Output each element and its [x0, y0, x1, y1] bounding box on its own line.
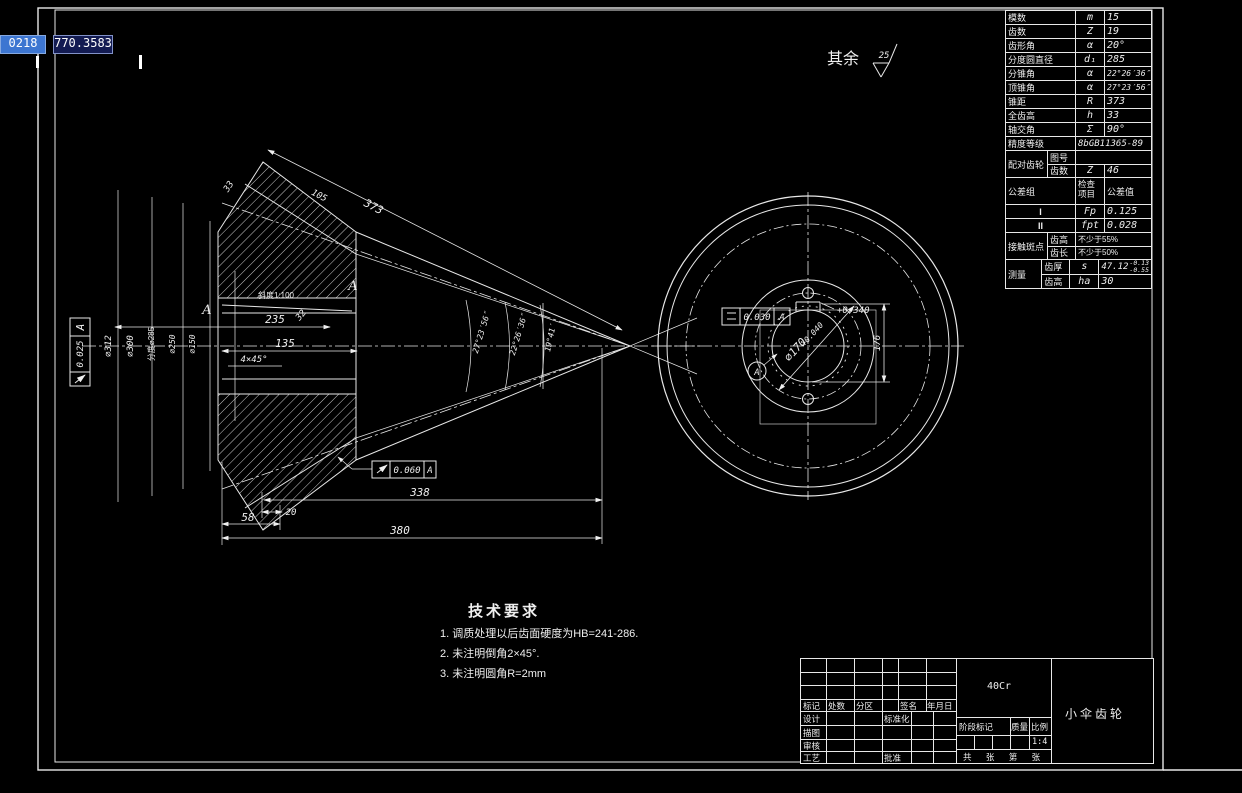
- tb-count: 处数: [828, 700, 845, 712]
- front-view-dimensions: ⌀170 +0.040 +0.340 176 A: [753, 306, 883, 378]
- param-label: 测量: [1006, 260, 1042, 288]
- tb-scale-value: 1:4: [1032, 737, 1047, 747]
- param-symbol: Σ: [1076, 123, 1105, 136]
- surface-finish-note: 其余 25: [827, 44, 897, 77]
- dim-bore-length: 135: [275, 337, 295, 350]
- param-symbol: α: [1076, 67, 1105, 80]
- param-value: 30: [1099, 275, 1151, 289]
- param-label: 精度等级: [1006, 137, 1076, 150]
- param-symbol: s: [1070, 260, 1099, 274]
- technical-requirements: 技术要求 1. 调质处理以后齿面硬度为HB=241-286. 2. 未注明倒角2…: [440, 600, 670, 681]
- param-row: 模数m15: [1006, 11, 1151, 25]
- param-row: 顶锥角α27°23′56″: [1006, 81, 1151, 95]
- param-label: I: [1006, 205, 1076, 218]
- param-label: 检查项目: [1076, 178, 1105, 204]
- dim-pitch-angle: 22°26′36″: [508, 312, 529, 356]
- param-value: 0.125: [1105, 205, 1151, 218]
- param-row-contact: 接触斑点 齿高不少于55% 齿长不少于50%: [1006, 233, 1151, 260]
- param-label: 分度圆直径: [1006, 53, 1076, 66]
- param-symbol: fpt: [1076, 219, 1105, 232]
- param-value: 22°26′36″: [1105, 67, 1151, 80]
- front-view-linework: [652, 192, 964, 500]
- tech-req-line: 3. 未注明圆角R=2mm: [440, 665, 670, 681]
- param-row: 轴交角Σ90°: [1006, 123, 1151, 137]
- surface-finish-prefix: 其余: [827, 49, 859, 68]
- tb-standardization: 标准化: [884, 713, 910, 725]
- gdt-bottom-value: 0.060: [393, 466, 420, 476]
- param-value: 不少于50%: [1076, 247, 1151, 260]
- param-label: 齿形角: [1006, 39, 1076, 52]
- dim-d250: ⌀250: [168, 334, 177, 353]
- tb-material: 40Cr: [987, 681, 1011, 692]
- dim-hub-length: 235: [265, 313, 285, 326]
- param-label: 公差值: [1105, 178, 1151, 204]
- param-row-tolerance-header: 公差组 检查项目 公差值: [1006, 178, 1151, 205]
- param-value: 27°23′56″: [1105, 81, 1151, 94]
- param-value: 33: [1105, 109, 1151, 122]
- gdt-bottom-datum: A: [426, 466, 432, 476]
- tb-review: 审核: [803, 740, 820, 752]
- param-row-mating-gear: 配对齿轮 图号 齿数Z46: [1006, 151, 1151, 178]
- param-value: 不少于55%: [1076, 233, 1151, 246]
- dim-d312: ⌀312: [104, 335, 114, 357]
- tb-approve: 批准: [884, 752, 901, 764]
- param-value: 19: [1105, 25, 1151, 38]
- param-symbol: ha: [1070, 275, 1099, 289]
- param-label: 齿高: [1042, 275, 1070, 289]
- dim-chamfer: 4×45°: [240, 355, 267, 365]
- param-row: 齿数Z19: [1006, 25, 1151, 39]
- tb-sheets: 共 张 第 张: [963, 751, 1046, 763]
- dim-tip-width: 20: [286, 508, 297, 518]
- param-label: 齿长: [1048, 247, 1076, 260]
- runout-icon: [75, 375, 85, 383]
- param-label: 公差组: [1006, 178, 1076, 204]
- tb-process: 工艺: [803, 752, 820, 764]
- dim-d300: ⌀300: [126, 335, 136, 357]
- gdt-left-datum: A: [74, 324, 87, 332]
- param-row: 全齿高h33: [1006, 109, 1151, 123]
- param-symbol: Z: [1076, 25, 1105, 38]
- tb-mass: 质量: [1011, 721, 1028, 733]
- cad-viewport: A 0.025 0.060 A ⌀312 ⌀300 分度⌀285 ⌀250 ⌀1…: [0, 0, 1242, 793]
- param-label: 锥距: [1006, 95, 1076, 108]
- param-value: 20°: [1105, 39, 1151, 52]
- param-label: 齿数: [1048, 165, 1076, 178]
- param-symbol: R: [1076, 95, 1105, 108]
- param-symbol: α: [1076, 39, 1105, 52]
- gdt-front-datum: A: [778, 313, 784, 323]
- gdt-left-value: 0.025: [76, 340, 86, 367]
- tech-req-title: 技术要求: [468, 600, 670, 621]
- tb-scale-label: 比例: [1031, 721, 1048, 733]
- param-label: 模数: [1006, 11, 1076, 24]
- param-label: 轴交角: [1006, 123, 1076, 136]
- coord-input-y[interactable]: 770.3583: [53, 35, 113, 54]
- param-symbol: m: [1076, 11, 1105, 24]
- param-row: 齿形角α20°: [1006, 39, 1151, 53]
- gear-parameter-table: 模数m15 齿数Z19 齿形角α20° 分度圆直径d₁285 分锥角α22°26…: [1005, 10, 1152, 289]
- tb-tracing: 描图: [803, 727, 820, 739]
- tech-req-line: 2. 未注明倒角2×45°.: [440, 645, 670, 661]
- param-label: 全齿高: [1006, 109, 1076, 122]
- param-symbol: Z: [1076, 165, 1105, 178]
- dim-keyway: 32: [294, 308, 309, 324]
- tech-req-line: 1. 调质处理以后齿面硬度为HB=241-286.: [440, 625, 670, 641]
- param-symbol: h: [1076, 109, 1105, 122]
- title-block: 标记 处数 分区 签名 年月日 设计 标准化 描图 审核 工艺 批准 40Cr …: [800, 658, 1154, 764]
- dim-root-angle: 19°41′: [543, 322, 558, 352]
- param-value: [1076, 151, 1151, 164]
- dim-face-angle: 27°23′56″: [471, 310, 492, 354]
- param-value: 0.028: [1105, 219, 1151, 232]
- dim-total-length: 380: [389, 524, 410, 537]
- param-value: 46: [1105, 165, 1151, 178]
- gdt-front-value: 0.030: [743, 313, 770, 323]
- param-value: 8bGB11365-89: [1076, 137, 1151, 150]
- tb-date: 年月日: [927, 700, 953, 712]
- param-label: 齿高: [1048, 233, 1076, 246]
- param-row: 分锥角α22°26′36″: [1006, 67, 1151, 81]
- dim-keyway-tolerance: +0.340: [837, 306, 870, 316]
- surface-roughness-value: 25: [879, 51, 890, 61]
- dim-d150: ⌀150: [188, 334, 197, 353]
- param-value: 47.12-0.13-0.55: [1099, 260, 1151, 274]
- crosshair-cursor[interactable]: [36, 55, 142, 69]
- dim-back-width: 58: [241, 511, 255, 524]
- param-label: 图号: [1048, 151, 1076, 164]
- param-label: 接触斑点: [1006, 233, 1048, 259]
- dim-d285-pitch: 分度⌀285: [146, 326, 156, 361]
- tb-zone: 分区: [856, 700, 873, 712]
- param-symbol: α: [1076, 81, 1105, 94]
- dim-tooth-depth: 33: [222, 180, 237, 195]
- param-value: 285: [1105, 53, 1151, 66]
- label-taper: 斜度1:100: [258, 290, 295, 300]
- tb-part-name: 小伞齿轮: [1065, 705, 1125, 722]
- param-value: 15: [1105, 11, 1151, 24]
- tb-signature: 签名: [900, 700, 917, 712]
- param-label: 齿厚: [1042, 260, 1070, 274]
- param-value: 373: [1105, 95, 1151, 108]
- param-row-accuracy: 精度等级8bGB11365-89: [1006, 137, 1151, 151]
- param-label: 配对齿轮: [1006, 151, 1048, 177]
- datum-a-label: A: [753, 368, 759, 378]
- param-label: 分锥角: [1006, 67, 1076, 80]
- tb-stage-mark: 阶段标记: [959, 721, 993, 733]
- coord-input-x[interactable]: 0218: [0, 35, 46, 54]
- section-label-a-left: A: [201, 303, 211, 318]
- param-label: 齿数: [1006, 25, 1076, 38]
- param-row-tolerance: IFp0.125: [1006, 205, 1151, 219]
- param-value: 90°: [1105, 123, 1151, 136]
- param-symbol: Fp: [1076, 205, 1105, 218]
- param-row-measure: 测量 齿厚s47.12-0.13-0.55 齿高ha30: [1006, 260, 1151, 288]
- section-label-a-right: A: [347, 279, 357, 294]
- dim-tip-to-apex: 338: [409, 486, 430, 499]
- param-row: 分度圆直径d₁285: [1006, 53, 1151, 67]
- param-symbol: d₁: [1076, 53, 1105, 66]
- runout-icon: [377, 465, 387, 473]
- dim-bore-tolerance: +0.040: [799, 320, 825, 348]
- param-row-tolerance: IIfpt0.028: [1006, 219, 1151, 233]
- param-label: 顶锥角: [1006, 81, 1076, 94]
- param-row: 锥距R373: [1006, 95, 1151, 109]
- param-label: II: [1006, 219, 1076, 232]
- symmetry-icon: [727, 313, 736, 319]
- tb-design: 设计: [803, 713, 820, 725]
- tb-mark: 标记: [803, 700, 820, 712]
- dim-keyway-depth: 176: [873, 335, 883, 351]
